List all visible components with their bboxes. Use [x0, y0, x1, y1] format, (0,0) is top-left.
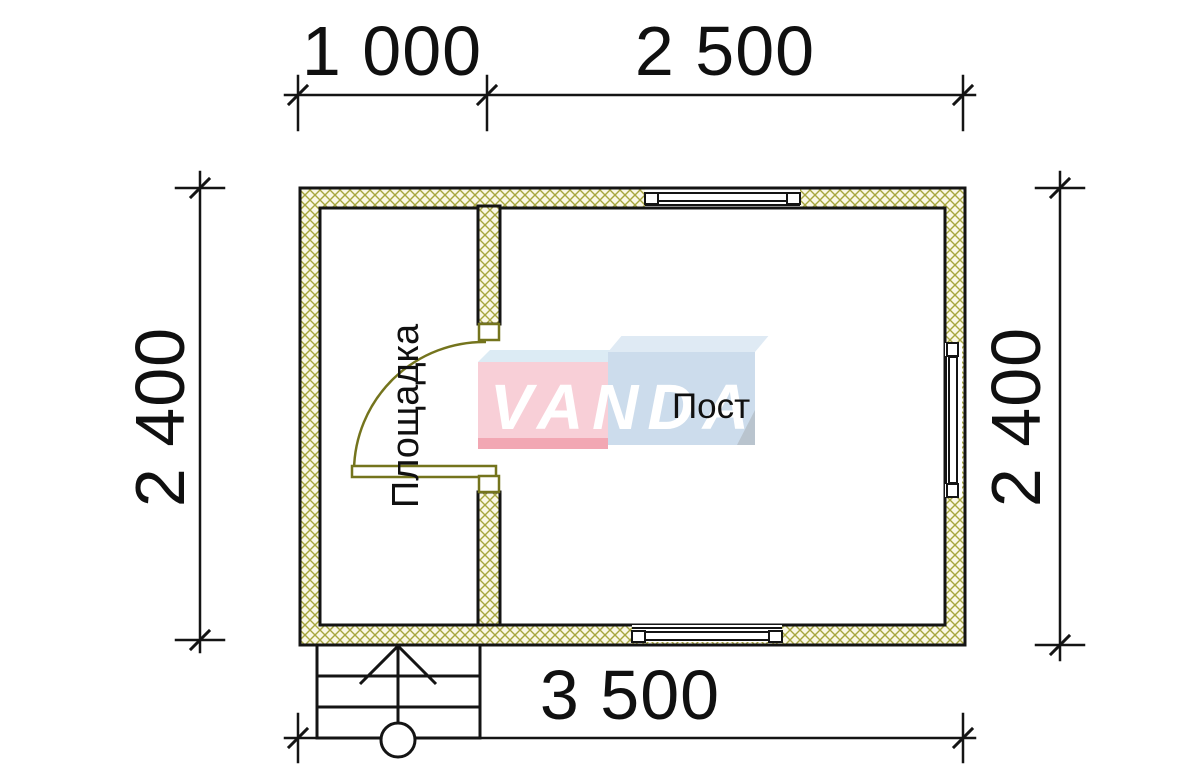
door-jamb-top [479, 324, 499, 340]
logo-pink-block-top-face [478, 350, 620, 362]
room-label-main: Пост [672, 389, 750, 424]
stair-start-marker [381, 723, 415, 757]
floor-plan-canvas: VANDA 1 000 2 500 2 400 2 400 3 500 Площ… [0, 0, 1200, 772]
logo-blue-block-top-face [608, 336, 768, 352]
dimension-label-left: 2 400 [125, 327, 195, 507]
room-label-vestibule: Площадка [387, 324, 425, 508]
window-top [645, 190, 800, 207]
window-bottom [632, 625, 782, 642]
door-jamb-bottom [479, 476, 499, 492]
dimension-label-right: 2 400 [981, 327, 1051, 507]
dimension-label-top-left: 1 000 [302, 16, 482, 86]
entrance-steps [317, 645, 480, 757]
dimension-label-bottom: 3 500 [540, 660, 720, 730]
window-right [945, 343, 962, 497]
dimension-label-top-right: 2 500 [635, 16, 815, 86]
